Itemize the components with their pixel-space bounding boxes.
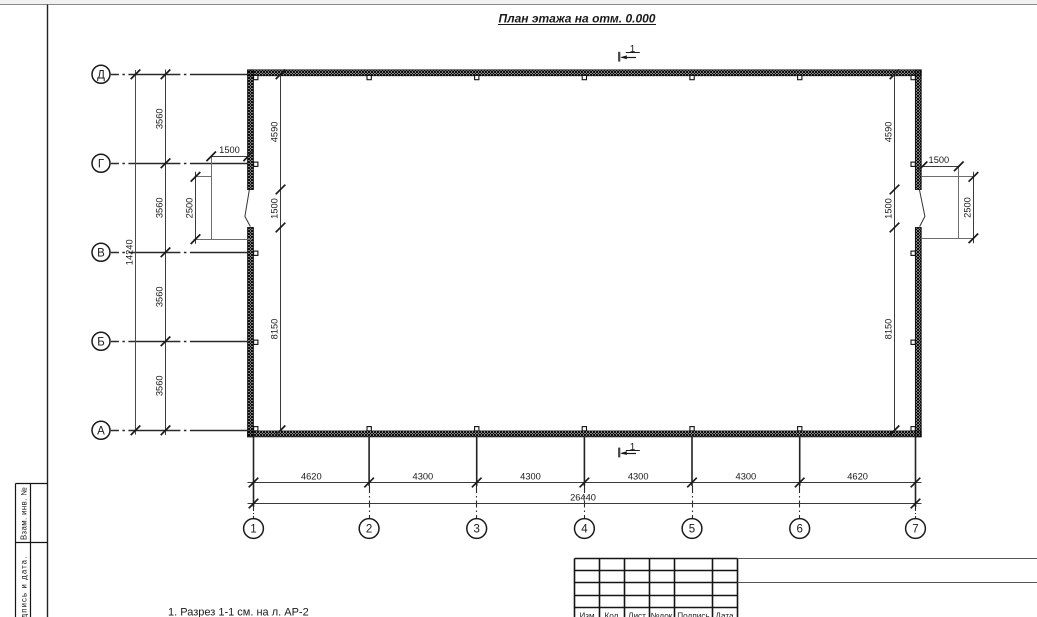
- svg-text:4590: 4590: [269, 122, 279, 143]
- svg-text:4590: 4590: [883, 122, 893, 143]
- svg-text:8150: 8150: [883, 319, 893, 340]
- svg-text:1500: 1500: [883, 198, 893, 219]
- svg-text:4300: 4300: [736, 471, 757, 481]
- svg-text:3: 3: [473, 524, 479, 536]
- svg-text:2500: 2500: [962, 197, 972, 218]
- svg-text:7: 7: [912, 524, 918, 536]
- svg-text:2: 2: [366, 524, 372, 536]
- svg-text:1500: 1500: [219, 145, 240, 155]
- svg-text:26440: 26440: [570, 492, 596, 502]
- svg-text:Подпись: Подпись: [677, 612, 709, 617]
- svg-text:1. Разрез 1-1 см. на л. АР-2: 1. Разрез 1-1 см. на л. АР-2: [168, 607, 309, 617]
- svg-text:Изм: Изм: [579, 612, 595, 617]
- svg-text:1500: 1500: [269, 198, 279, 219]
- svg-text:Кол: Кол: [605, 612, 619, 617]
- svg-text:4620: 4620: [301, 471, 322, 481]
- svg-text:Д: Д: [97, 69, 105, 81]
- svg-text:3560: 3560: [154, 108, 164, 129]
- svg-text:8150: 8150: [269, 319, 279, 340]
- svg-text:Б: Б: [97, 336, 105, 348]
- svg-text:Дата: Дата: [715, 612, 734, 617]
- svg-text:4620: 4620: [847, 471, 868, 481]
- svg-text:Г: Г: [98, 158, 105, 170]
- svg-text:14240: 14240: [124, 239, 134, 265]
- svg-text:1500: 1500: [929, 155, 950, 165]
- svg-text:3560: 3560: [154, 197, 164, 218]
- svg-text:А: А: [97, 425, 105, 437]
- svg-text:Подпись и дата.: Подпись и дата.: [19, 556, 28, 617]
- svg-text:4300: 4300: [520, 471, 541, 481]
- svg-text:В: В: [97, 247, 105, 259]
- svg-text:5: 5: [689, 524, 695, 536]
- svg-text:4300: 4300: [413, 471, 434, 481]
- svg-text:4300: 4300: [628, 471, 649, 481]
- svg-text:1: 1: [250, 524, 256, 536]
- svg-text:3560: 3560: [154, 375, 164, 396]
- svg-text:Лист: Лист: [628, 612, 646, 617]
- svg-text:4: 4: [581, 524, 588, 536]
- svg-text:3560: 3560: [154, 286, 164, 307]
- svg-text:Взам. инв. №: Взам. инв. №: [19, 487, 28, 540]
- svg-text:6: 6: [796, 524, 802, 536]
- svg-text:1: 1: [630, 442, 636, 453]
- svg-text:План этажа на отм. 0.000: План этажа на отм. 0.000: [499, 11, 656, 25]
- svg-text:2500: 2500: [184, 198, 194, 219]
- svg-text:1: 1: [630, 44, 636, 55]
- svg-text:№док: №док: [651, 612, 673, 617]
